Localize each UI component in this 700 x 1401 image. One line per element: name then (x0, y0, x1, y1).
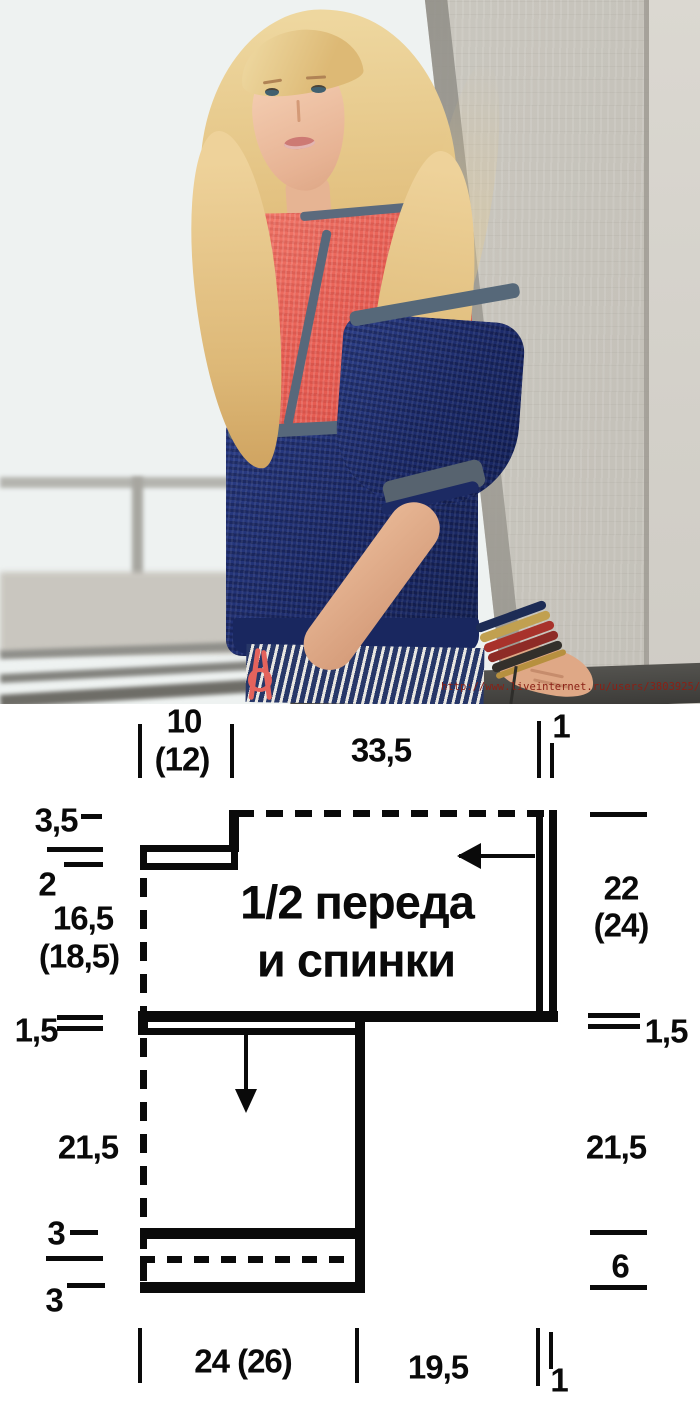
tick-bottom-body-right (355, 1328, 359, 1383)
outline-hem-bottom-line (140, 1282, 364, 1293)
measure-yoke-label: 16,5 (53, 902, 113, 935)
measure-sleeve-label: 22 (604, 872, 639, 905)
measure-bottom-cuff-label: 1 (550, 1364, 567, 1397)
measure-trim-left-label: 1,5 (15, 1014, 58, 1047)
railing-post (132, 477, 143, 577)
measure-sleeve-alt-label: (24) (594, 909, 649, 942)
schematic-title-line1: 1/2 переда (240, 879, 474, 926)
dimension-dash (588, 1024, 640, 1029)
outline-side-seam (355, 1022, 365, 1293)
outline-sleeve-edge-inner (536, 810, 543, 1019)
measure-neck-width-label: 10 (167, 705, 202, 738)
measure-top-cuff-label: 1 (552, 710, 569, 743)
knit-direction-arrow-head-left (457, 843, 481, 869)
measure-shoulder-label: 2 (38, 868, 55, 901)
outline-sleeve-edge-outer (549, 810, 557, 1019)
measure-body-width-label: 24 (26) (194, 1345, 292, 1378)
measure-trim-right-label: 1,5 (645, 1015, 688, 1048)
coral-drawstring-loop (248, 668, 272, 692)
measure-sleeve-bottom-label: 19,5 (408, 1351, 468, 1384)
measure-side-right-label: 21,5 (586, 1131, 646, 1164)
dimension-dash (57, 1015, 103, 1020)
measure-top-width-label: 33,5 (351, 734, 411, 767)
dimension-dash (70, 1230, 98, 1235)
watermark-url: http://www.liveinternet.ru/users/3803925… (441, 681, 700, 693)
outline-hem-dashed-line (140, 1256, 358, 1263)
outline-hem-top-line (140, 1228, 364, 1239)
railing-bar (0, 477, 246, 488)
dimension-dash (588, 1013, 640, 1018)
measure-neck-depth-label: 3,5 (35, 804, 78, 837)
dimension-dash (57, 1026, 103, 1031)
tick-bottom-body-left (138, 1328, 142, 1383)
dimension-dash (64, 862, 103, 867)
measure-hem-lower-label: 3 (45, 1284, 62, 1317)
measure-neck-width-alt-label: (12) (155, 743, 210, 776)
tick-top-neck-left (138, 724, 142, 778)
outline-top-fold-dashed (237, 810, 548, 817)
dimension-dash (67, 1283, 105, 1288)
model-eye (265, 88, 279, 96)
dimension-dash (590, 812, 647, 817)
dimension-dash (81, 814, 102, 819)
dimension-dash (46, 1256, 103, 1261)
outline-underarm-ridge (138, 1028, 358, 1035)
measure-hem-upper-label: 3 (47, 1217, 64, 1250)
tick-top-cuff-right (550, 743, 554, 778)
tick-top-neck-right (230, 724, 234, 778)
dimension-dash (590, 1230, 647, 1235)
dimension-dash (47, 847, 103, 852)
dimension-dash (590, 1285, 647, 1290)
model-photo: http://www.liveinternet.ru/users/3803925… (0, 0, 700, 704)
measure-hem-right-label: 6 (611, 1250, 628, 1283)
striped-skirt (246, 644, 485, 704)
page: http://www.liveinternet.ru/users/3803925… (0, 0, 700, 1401)
schematic-title-line2: и спинки (257, 937, 455, 984)
tick-top-cuff-left (537, 721, 541, 778)
knit-direction-arrow-line (244, 1033, 248, 1093)
outline-underarm-line (138, 1011, 558, 1022)
measure-side-left-label: 21,5 (58, 1131, 118, 1164)
knit-direction-arrow-head-down (235, 1089, 257, 1113)
concrete-wall-right-face (649, 0, 700, 704)
model-eye (311, 85, 326, 93)
outline-neckband (140, 845, 238, 870)
tick-bottom-cuff-left (536, 1328, 540, 1386)
measure-yoke-alt-label: (18,5) (39, 940, 119, 973)
